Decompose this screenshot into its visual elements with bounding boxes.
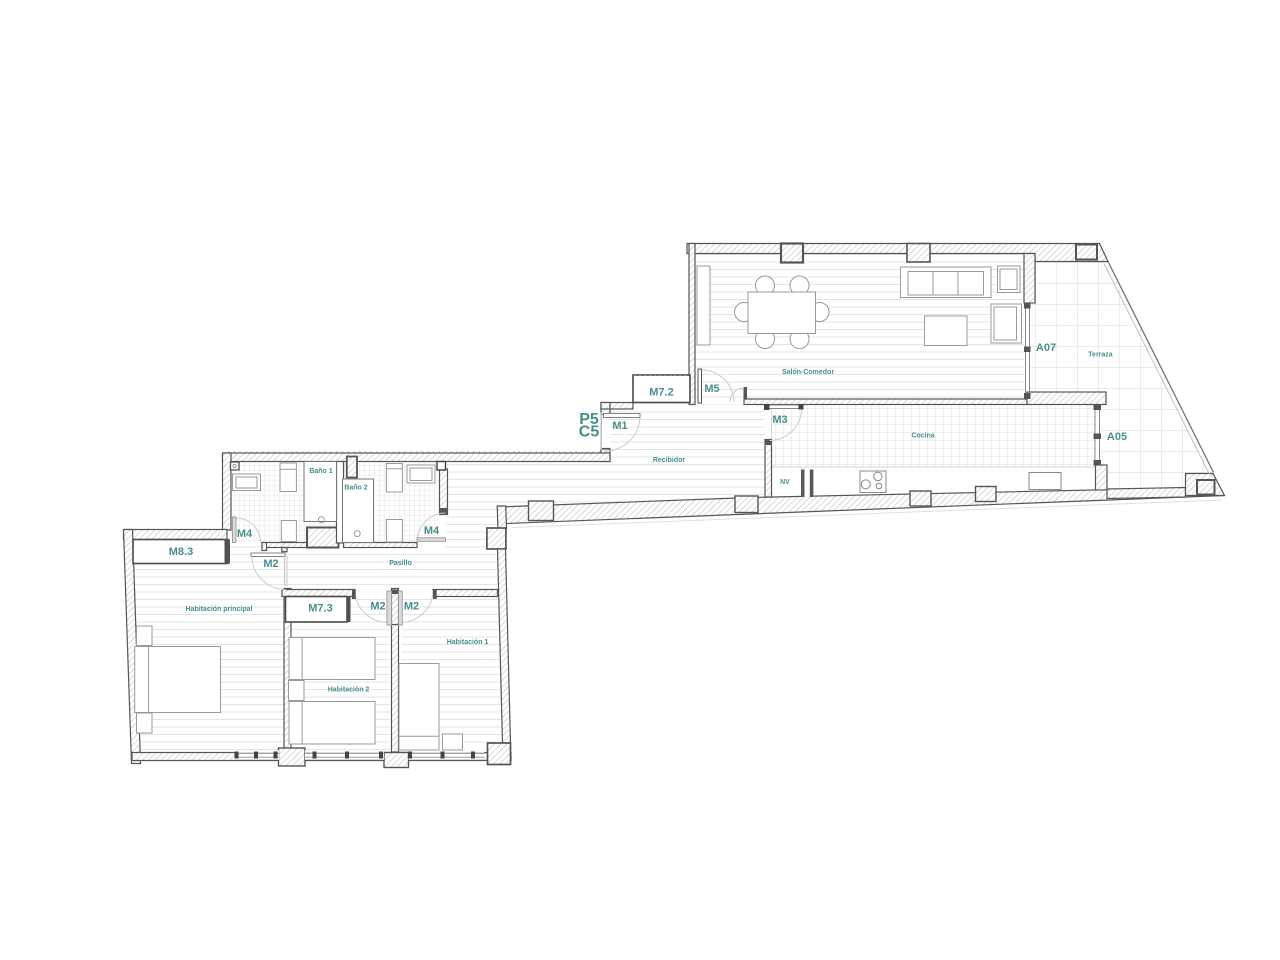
svg-text:Terraza: Terraza — [1088, 352, 1112, 359]
svg-text:Habitación 2: Habitación 2 — [328, 687, 370, 694]
svg-text:M7.2: M7.2 — [649, 387, 673, 399]
svg-text:NV: NV — [780, 479, 790, 486]
svg-text:Salón-Comedor: Salón-Comedor — [782, 369, 834, 376]
svg-text:C5: C5 — [579, 424, 600, 441]
svg-text:Recibidor: Recibidor — [653, 457, 686, 464]
svg-text:Habitación 1: Habitación 1 — [447, 639, 489, 646]
svg-text:M2: M2 — [404, 601, 419, 613]
svg-text:Cocina: Cocina — [911, 433, 934, 440]
svg-text:M3: M3 — [772, 414, 787, 426]
svg-text:M1: M1 — [612, 420, 627, 432]
svg-text:Habitación principal: Habitación principal — [186, 606, 253, 613]
svg-text:M4: M4 — [237, 528, 253, 540]
svg-text:M4: M4 — [424, 525, 440, 537]
svg-text:Baño 2: Baño 2 — [344, 485, 367, 492]
svg-text:M2: M2 — [370, 601, 385, 613]
svg-text:M8.3: M8.3 — [169, 546, 193, 558]
svg-text:A05: A05 — [1107, 431, 1127, 443]
svg-text:A07: A07 — [1036, 342, 1056, 354]
svg-text:Baño 1: Baño 1 — [309, 468, 332, 475]
svg-text:M7.3: M7.3 — [308, 603, 332, 615]
svg-text:Pasillo: Pasillo — [389, 560, 412, 567]
svg-text:M5: M5 — [704, 383, 719, 395]
svg-text:M2: M2 — [263, 558, 278, 570]
